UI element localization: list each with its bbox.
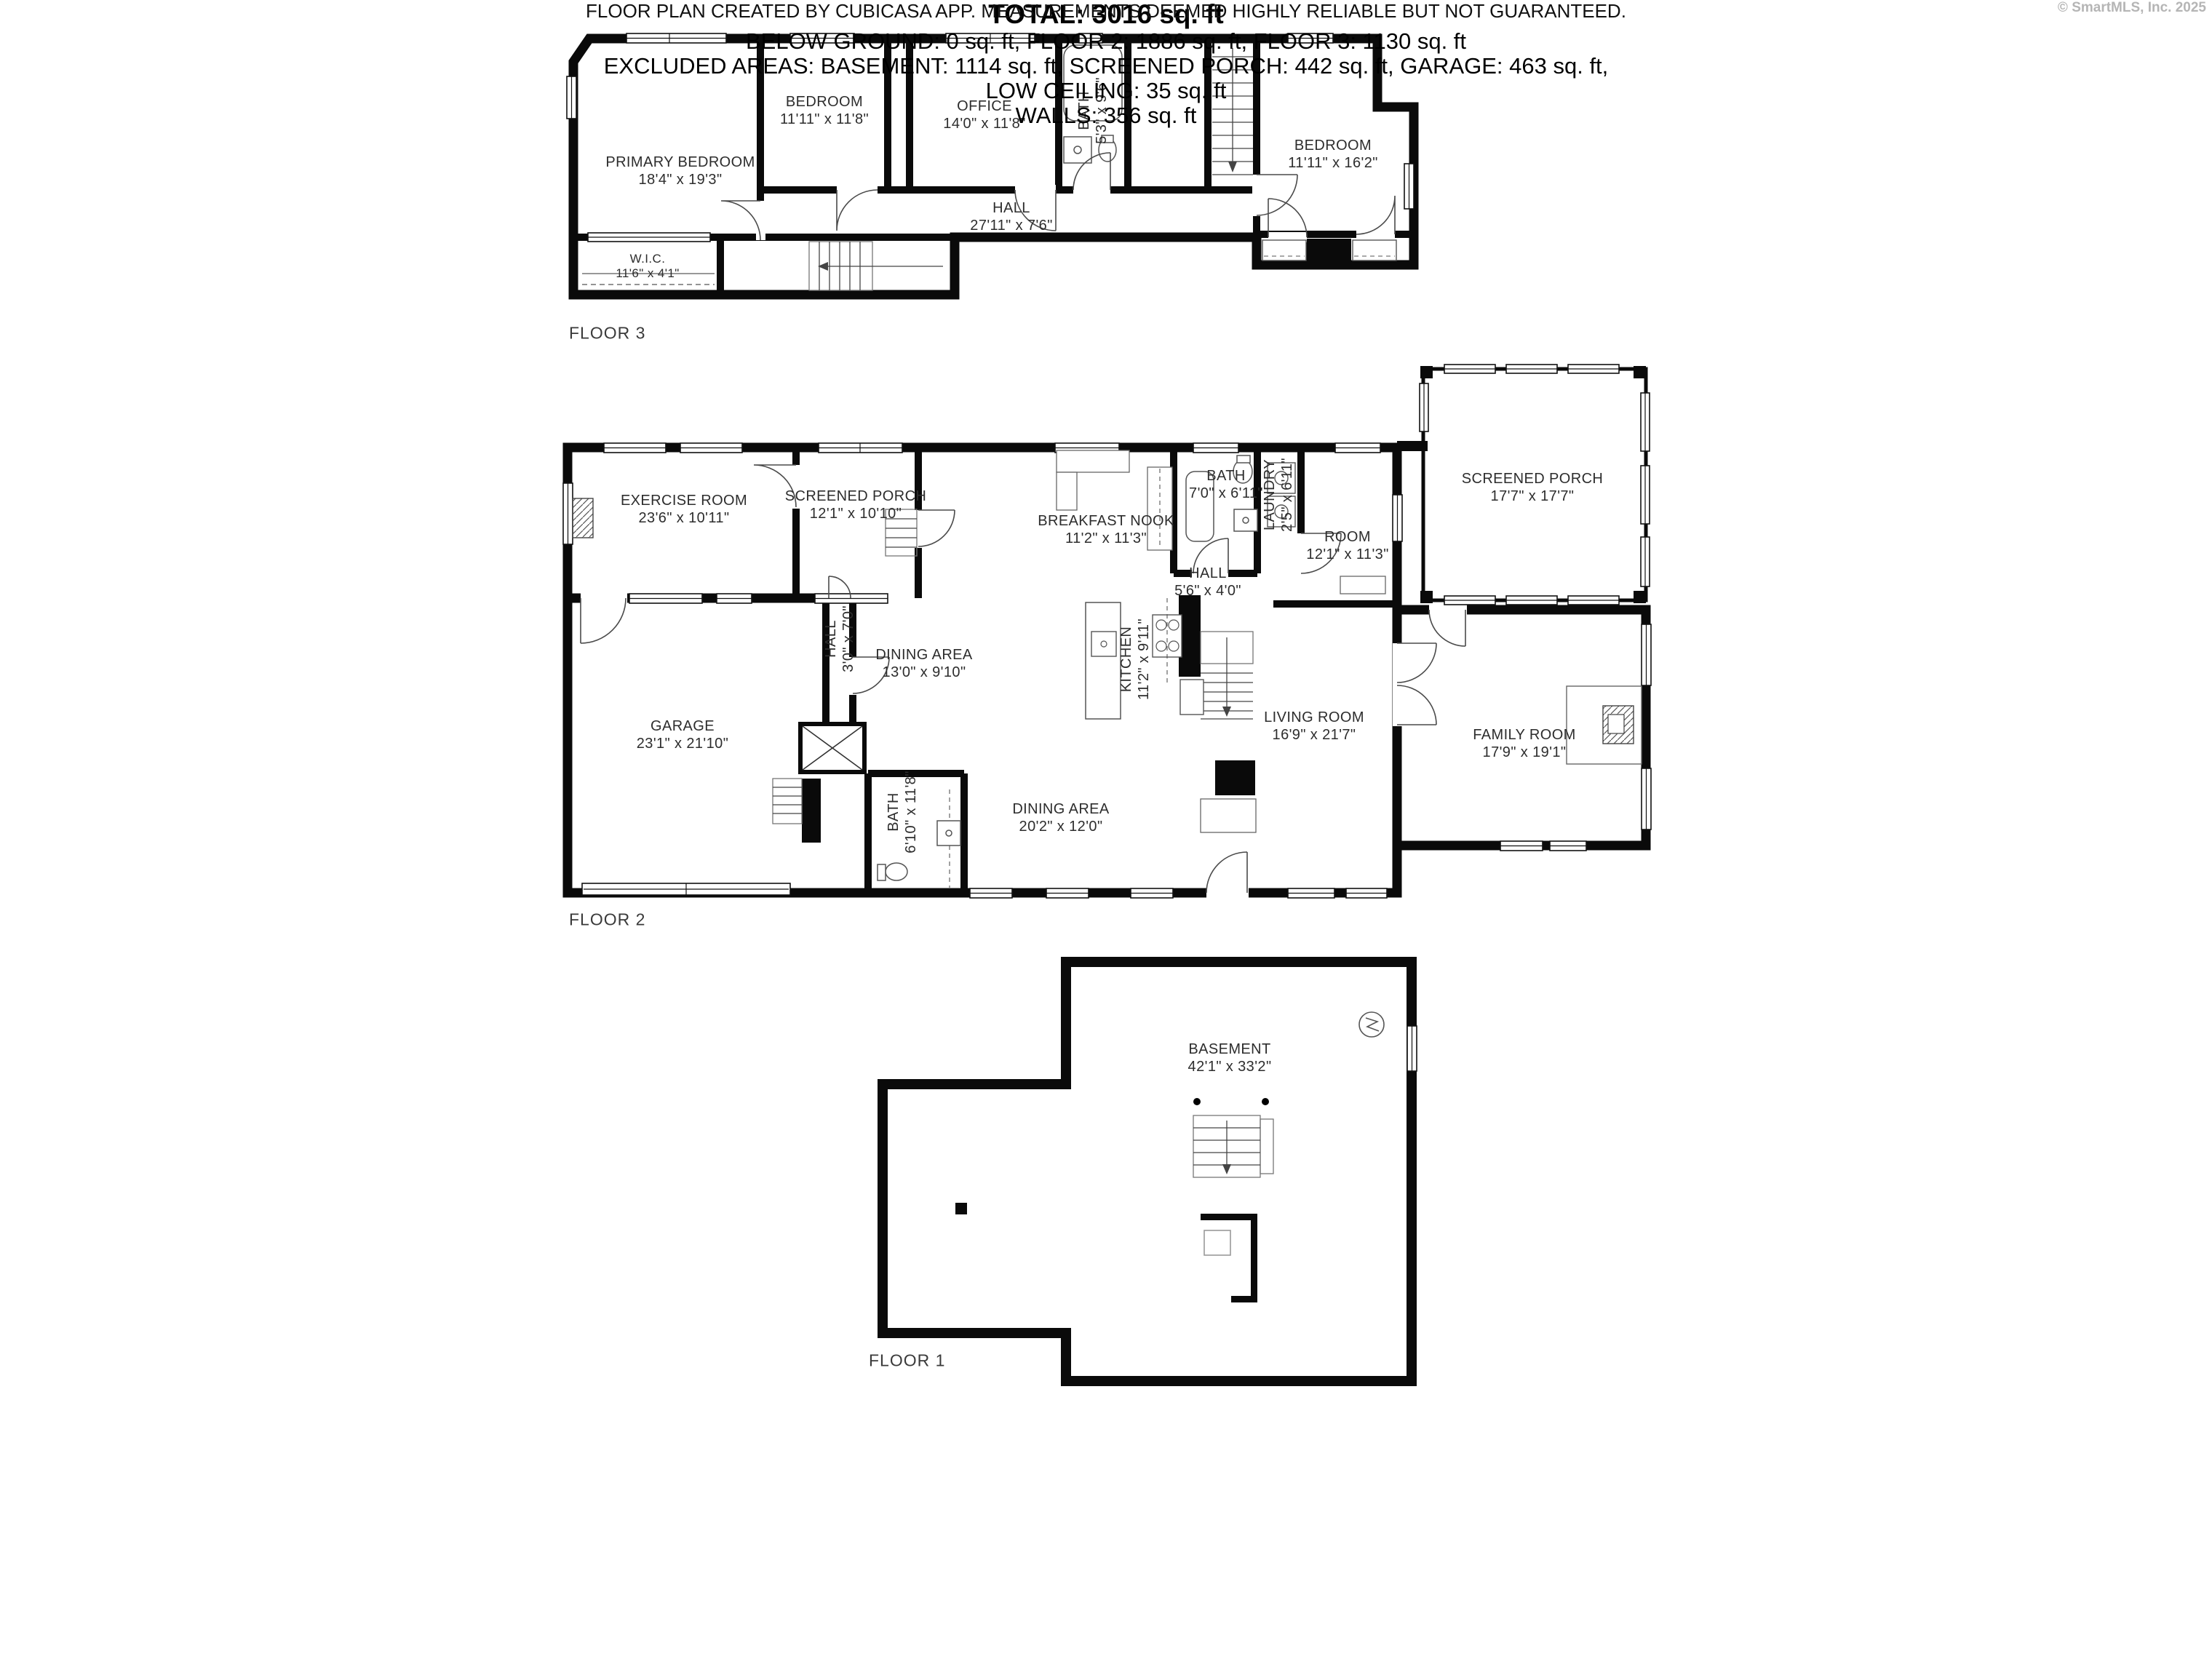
room-label-hall-garage: HALL 3'0" x 7'0"	[822, 605, 857, 672]
room-label-dining-area-large: DINING AREA 20'2" x 12'0"	[1012, 800, 1109, 835]
copyright-text: © SmartMLS, Inc. 2025	[2058, 0, 2206, 16]
room-label-dining-area-small: DINING AREA 13'0" x 9'10"	[875, 646, 972, 681]
desk-icon	[1340, 576, 1385, 594]
room-label-breakfast-nook: BREAKFAST NOOK 11'2" x 11'3"	[1038, 512, 1174, 547]
floor1-title: FLOOR 1	[869, 1351, 945, 1371]
room-label-screened-porch-small: SCREENED PORCH 12'1" x 10'10"	[785, 488, 927, 522]
floorplan-sheet: PRIMARY BEDROOM 18'4" x 19'3" BEDROOM 11…	[0, 0, 2212, 1659]
room-label-hall-floor3: HALL 27'11" x 7'6"	[970, 199, 1052, 234]
summary-by-floor: BELOW GROUND: 0 sq. ft, FLOOR 2: 1886 sq…	[0, 29, 2212, 54]
basement-window	[1407, 1026, 1417, 1071]
closet-x	[800, 724, 864, 772]
floor1-plan	[883, 962, 1417, 1381]
fridge-icon	[1180, 680, 1204, 715]
room-label-room: ROOM 12'1" x 11'3"	[1306, 528, 1388, 563]
room-label-bedroom-b: BEDROOM 11'11" x 16'2"	[1288, 137, 1377, 172]
room-label-bath-floor2-lower: BATH 6'10" x 11'8"	[885, 771, 920, 853]
post-dot	[1193, 1098, 1201, 1105]
room-label-kitchen: KITCHEN 11'2" x 9'11"	[1118, 618, 1153, 700]
room-label-garage: GARAGE 23'1" x 21'10"	[637, 717, 728, 752]
post-dot	[1262, 1098, 1269, 1105]
floor3-title: FLOOR 3	[569, 324, 645, 343]
room-label-primary-bedroom: PRIMARY BEDROOM 18'4" x 19'3"	[605, 154, 755, 188]
room-label-basement: BASEMENT 42'1" x 33'2"	[1188, 1041, 1272, 1075]
fireplace-icon	[1567, 686, 1642, 764]
summary-low-ceiling: LOW CEILING: 35 sq. ft	[0, 79, 2212, 103]
floor2-title: FLOOR 2	[569, 910, 645, 930]
room-label-screened-porch-large: SCREENED PORCH 17'7" x 17'7"	[1462, 470, 1604, 505]
chimney-icon	[573, 498, 593, 538]
toilet-icon	[886, 863, 907, 880]
room-label-family-room: FAMILY ROOM 17'9" x 19'1"	[1473, 726, 1575, 761]
room-label-living-room: LIVING ROOM 16'9" x 21'7"	[1264, 709, 1364, 744]
floor1-outer-wall	[883, 962, 1412, 1381]
room-label-exercise-room: EXERCISE ROOM 23'6" x 10'11"	[621, 492, 747, 527]
summary-walls: WALLS: 356 sq. ft	[0, 103, 2212, 128]
room-label-hall-floor2: HALL 5'6" x 4'0"	[1174, 565, 1241, 600]
room-label-laundry: LAUNDRY 2'5" x 6'11"	[1261, 458, 1296, 532]
disclaimer-text: FLOOR PLAN CREATED BY CUBICASA APP. MEAS…	[0, 0, 2212, 23]
room-label-bath-floor2-upper: BATH 7'0" x 6'11"	[1189, 467, 1263, 502]
closet-builtins	[1201, 799, 1256, 832]
wall-fill	[1306, 239, 1351, 260]
electrical-panel-icon	[1359, 1012, 1384, 1037]
summary-excluded: EXCLUDED AREAS: BASEMENT: 1114 sq. ft, S…	[0, 54, 2212, 79]
room-label-wic: W.I.C. 11'6" x 4'1"	[616, 252, 679, 281]
garage-door	[582, 883, 790, 895]
utility-box	[1204, 1230, 1230, 1255]
sink-icon	[1091, 632, 1116, 656]
